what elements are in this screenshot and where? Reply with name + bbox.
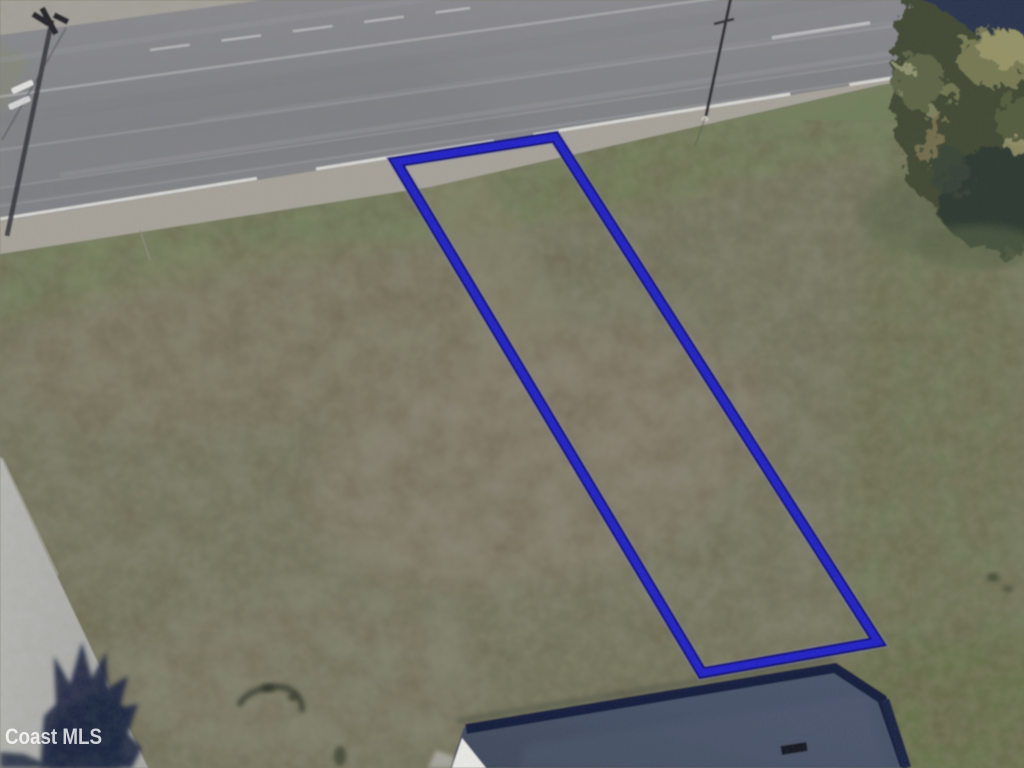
svg-text:Coast MLS: Coast MLS <box>5 724 102 749</box>
